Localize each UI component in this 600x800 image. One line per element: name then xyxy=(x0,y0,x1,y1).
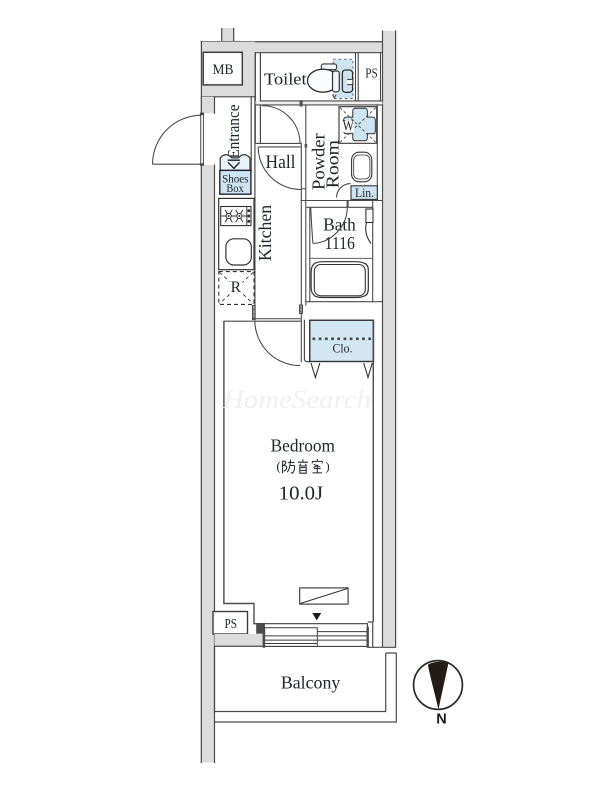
svg-text:): ) xyxy=(325,459,329,474)
svg-text:(: ( xyxy=(276,459,280,474)
svg-text:Balcony: Balcony xyxy=(281,673,341,693)
svg-text:Bath: Bath xyxy=(323,215,356,235)
svg-text:PS: PS xyxy=(225,617,238,632)
svg-text:Kitchen: Kitchen xyxy=(255,205,275,262)
svg-text:10.0J: 10.0J xyxy=(279,483,324,504)
svg-text:Lin.: Lin. xyxy=(355,186,374,200)
svg-text:Bedroom: Bedroom xyxy=(271,435,335,455)
svg-text:Clo.: Clo. xyxy=(333,342,353,356)
svg-text:MB: MB xyxy=(213,62,234,78)
svg-text:HomeSearch: HomeSearch xyxy=(222,385,371,414)
svg-text:R: R xyxy=(231,279,242,296)
svg-text:PS: PS xyxy=(365,66,378,81)
svg-text:Room: Room xyxy=(323,140,343,188)
svg-text:Entrance: Entrance xyxy=(224,105,243,159)
svg-text:Toilet: Toilet xyxy=(264,70,307,89)
svg-text:Hall: Hall xyxy=(266,152,296,173)
svg-text:N: N xyxy=(436,712,446,728)
svg-text:1116: 1116 xyxy=(325,233,356,253)
svg-text:W: W xyxy=(342,118,354,135)
svg-text:Box: Box xyxy=(226,183,244,195)
